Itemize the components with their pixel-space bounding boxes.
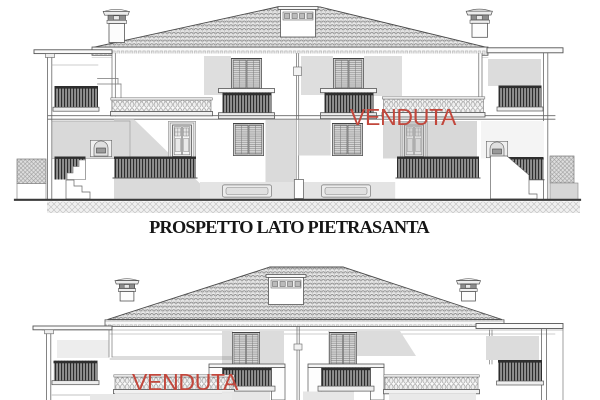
svg-text:VENDUTA: VENDUTA [132, 369, 239, 395]
svg-text:PROSPETTO LATO PIETRASANTA: PROSPETTO LATO PIETRASANTA [149, 217, 430, 237]
svg-text:VENDUTA: VENDUTA [350, 104, 457, 130]
